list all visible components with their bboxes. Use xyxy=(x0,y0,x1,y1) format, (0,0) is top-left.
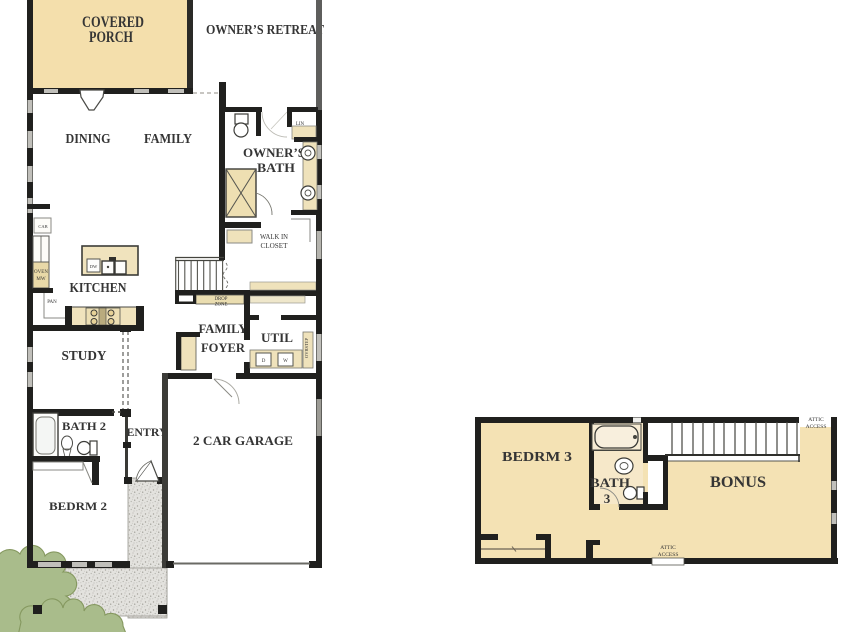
svg-text:D: D xyxy=(262,359,266,364)
svg-text:ENTRY: ENTRY xyxy=(127,425,168,439)
svg-text:WALK IN: WALK IN xyxy=(260,232,289,241)
svg-text:ACCESS: ACCESS xyxy=(658,552,679,558)
svg-text:OWNER’S RETREAT: OWNER’S RETREAT xyxy=(206,23,325,38)
svg-text:BEDRM 3: BEDRM 3 xyxy=(502,450,572,465)
svg-text:W: W xyxy=(283,359,288,364)
svg-text:BONUS: BONUS xyxy=(710,474,766,491)
svg-text:2 CAR GARAGE: 2 CAR GARAGE xyxy=(193,433,293,448)
svg-text:3: 3 xyxy=(604,491,611,506)
svg-text:BATH: BATH xyxy=(590,475,630,490)
svg-text:BATH 2: BATH 2 xyxy=(62,419,106,433)
svg-text:FAMILY: FAMILY xyxy=(199,321,249,336)
svg-text:OVEN: OVEN xyxy=(34,270,48,275)
svg-text:FAMILY: FAMILY xyxy=(144,132,192,147)
svg-text:CLOSET: CLOSET xyxy=(261,241,288,250)
svg-text:ZONE: ZONE xyxy=(215,303,228,308)
svg-text:DW: DW xyxy=(90,264,98,269)
svg-text:OWNER’S: OWNER’S xyxy=(243,145,305,160)
svg-text:MW: MW xyxy=(36,277,45,282)
svg-text:KITCHEN: KITCHEN xyxy=(70,281,127,296)
svg-text:ATTIC: ATTIC xyxy=(660,545,676,551)
svg-text:ACCESS: ACCESS xyxy=(806,424,827,430)
svg-text:STUDY: STUDY xyxy=(62,349,107,364)
svg-text:BATH: BATH xyxy=(257,160,295,175)
svg-text:DINING: DINING xyxy=(66,132,111,147)
svg-text:UTIL: UTIL xyxy=(261,330,293,345)
svg-text:FOYER: FOYER xyxy=(201,340,246,355)
svg-text:ATTIC: ATTIC xyxy=(808,417,824,423)
svg-text:CAB: CAB xyxy=(38,224,47,229)
svg-text:OVRSTEP: OVRSTEP xyxy=(304,338,309,359)
svg-text:PAN: PAN xyxy=(47,300,57,305)
svg-text:DROP: DROP xyxy=(215,297,228,302)
svg-text:BEDRM 2: BEDRM 2 xyxy=(49,499,107,513)
svg-text:PORCH: PORCH xyxy=(89,29,133,46)
